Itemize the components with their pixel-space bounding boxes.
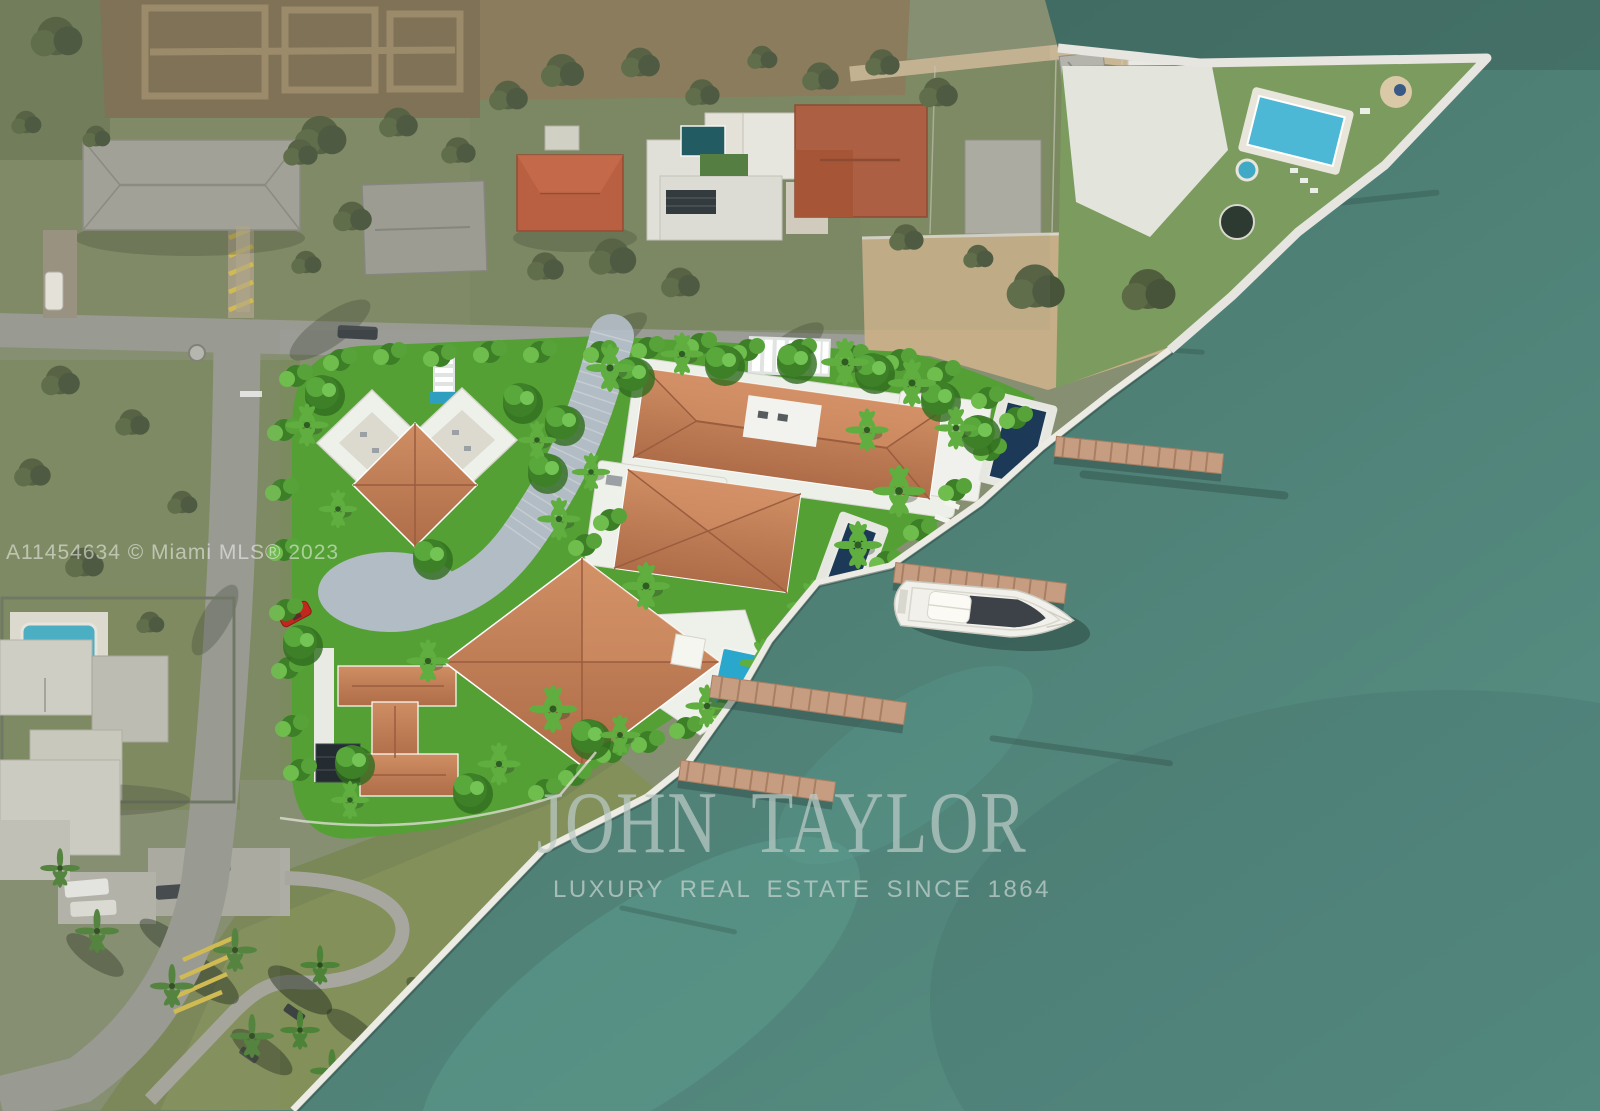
watermark-tagline: LUXURY REAL ESTATE SINCE 1864 [553, 876, 1051, 903]
mls-watermark: A11454634 © Miami MLS® 2023 [6, 541, 339, 564]
aerial-screenshot: A11454634 © Miami MLS® 2023 JOHN TAYLOR … [0, 0, 1600, 1111]
aerial-image: A11454634 © Miami MLS® 2023 JOHN TAYLOR … [0, 0, 1600, 1111]
spa [1237, 160, 1257, 180]
watermark-brand: JOHN TAYLOR [537, 775, 1028, 872]
trampoline [1220, 205, 1254, 239]
pavilion [671, 634, 706, 669]
